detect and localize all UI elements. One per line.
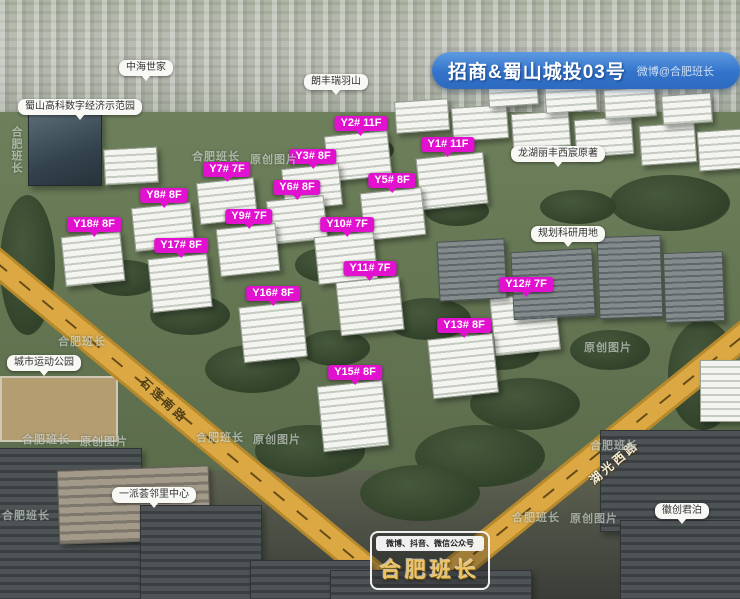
social-channels-label: 微博、抖音、微信公众号 xyxy=(376,536,484,551)
watermark: 合肥班长 xyxy=(58,333,106,349)
background-building xyxy=(415,152,488,211)
background-building xyxy=(238,301,308,363)
building-marker: Y18# 8F xyxy=(67,217,121,232)
trees xyxy=(360,465,480,521)
place-label: 徽创君泊 xyxy=(655,503,709,519)
building-marker: Y11# 7F xyxy=(344,261,397,276)
trees xyxy=(300,330,370,366)
watermark: 原创图片 xyxy=(584,339,632,355)
building-marker: Y6# 8F xyxy=(273,180,320,195)
trees xyxy=(610,175,730,231)
building-marker: Y15# 8F xyxy=(328,365,382,380)
building-marker: Y5# 8F xyxy=(368,173,415,188)
place-label: 城市运动公园 xyxy=(7,355,81,371)
background-building xyxy=(147,253,212,313)
background-building xyxy=(140,505,262,599)
background-building xyxy=(394,98,450,134)
brand-badge: 微博、抖音、微信公众号 合肥班长 xyxy=(370,531,490,590)
watermark: 合肥班长 xyxy=(590,437,638,453)
watermark: 合肥班长 xyxy=(8,126,24,174)
project-title: 招商&蜀山城投03号 xyxy=(448,57,626,84)
background-building xyxy=(697,128,740,171)
background-building xyxy=(335,276,404,336)
watermark: 原创图片 xyxy=(253,431,301,447)
background-building xyxy=(216,223,281,277)
place-label: 中海世家 xyxy=(119,60,173,76)
building-marker: Y12# 7F xyxy=(499,277,553,292)
building-marker: Y17# 8F xyxy=(154,238,208,253)
building-marker: Y8# 8F xyxy=(140,188,187,203)
background-building xyxy=(597,235,664,319)
place-label: 朗丰瑞羽山 xyxy=(304,74,368,90)
watermark: 原创图片 xyxy=(570,510,618,526)
background-building xyxy=(700,360,740,422)
background-building xyxy=(61,231,126,287)
watermark: 合肥班长 xyxy=(512,509,560,525)
building-marker: Y7# 7F xyxy=(203,162,250,177)
banner-credit: 微博@合肥班长 xyxy=(637,63,714,79)
background-building xyxy=(427,333,499,400)
building-marker: Y9# 7F xyxy=(225,209,272,224)
watermark: 合肥班长 xyxy=(196,429,244,445)
brand-name: 合肥班长 xyxy=(376,554,484,584)
background-building xyxy=(317,380,390,453)
building-marker: Y16# 8F xyxy=(246,286,300,301)
place-label: 蜀山高科数字经济示范园 xyxy=(18,99,142,115)
background-building xyxy=(103,147,159,186)
background-building xyxy=(639,122,698,166)
watermark: 原创图片 xyxy=(80,433,128,449)
title-banner: 招商&蜀山城投03号 微博@合肥班长 xyxy=(432,52,740,89)
place-label: 规划科研用地 xyxy=(531,226,605,242)
place-label: 龙湖丽丰西宸原著 xyxy=(511,146,605,162)
background-building xyxy=(620,520,740,599)
building-marker: Y2# 11F xyxy=(335,116,388,131)
watermark: 合肥班长 xyxy=(192,148,240,164)
building-marker: Y10# 7F xyxy=(320,217,374,232)
watermark: 原创图片 xyxy=(250,151,298,167)
building-marker: Y13# 8F xyxy=(437,318,491,333)
watermark: 合肥班长 xyxy=(22,431,70,447)
aerial-site-plan: Y2# 11FY1# 11FY3# 8FY7# 7FY5# 8FY6# 8FY8… xyxy=(0,0,740,599)
background-building xyxy=(511,110,571,150)
background-building xyxy=(603,86,657,120)
background-building xyxy=(436,238,507,301)
background-building xyxy=(28,112,102,186)
place-label: 一派荟邻里中心 xyxy=(112,487,196,503)
background-building xyxy=(661,92,713,125)
watermark: 合肥班长 xyxy=(2,507,50,523)
building-marker: Y1# 11F xyxy=(422,137,475,152)
background-building xyxy=(663,251,725,323)
trees xyxy=(540,190,616,224)
